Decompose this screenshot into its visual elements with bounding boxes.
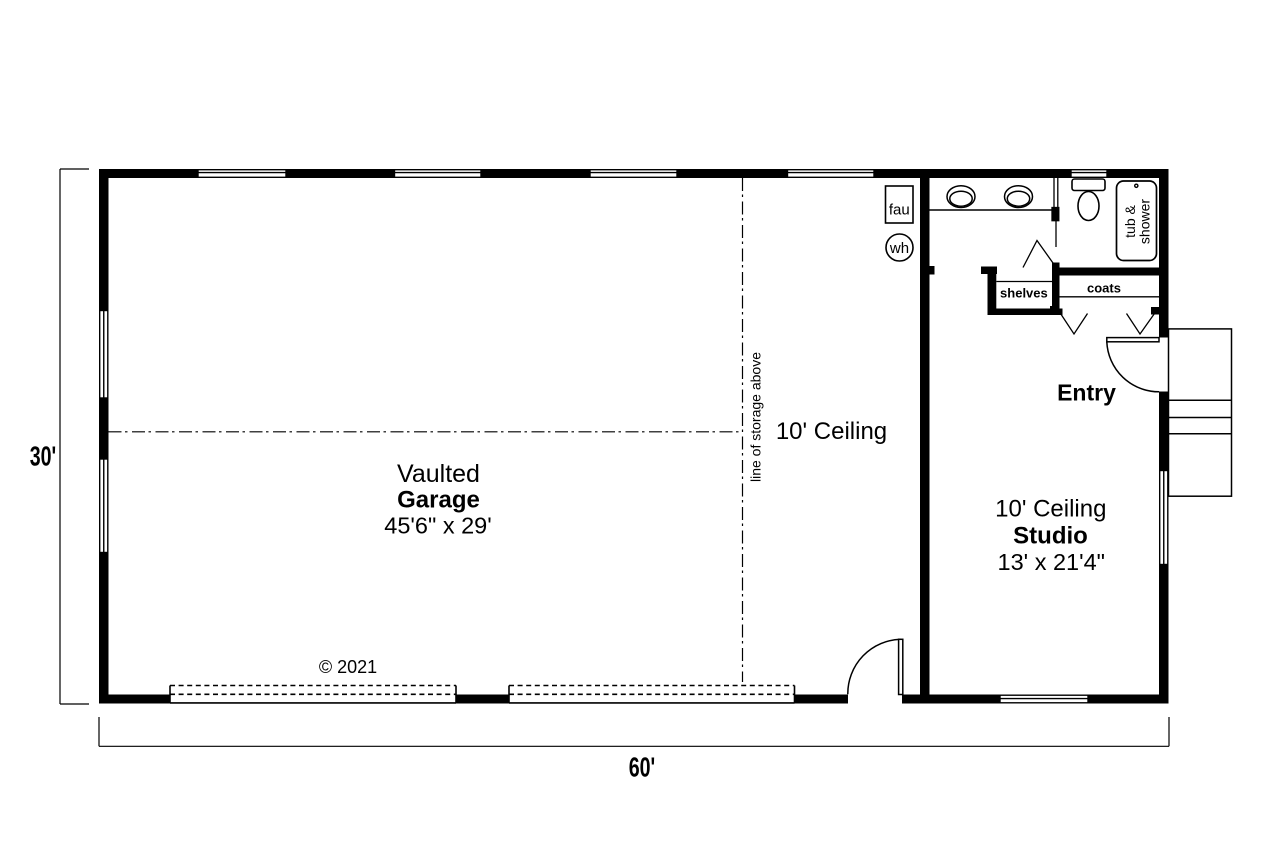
svg-text:line of storage above: line of storage above <box>748 352 764 482</box>
svg-text:fau: fau <box>889 202 910 219</box>
svg-text:10' Ceiling: 10' Ceiling <box>776 418 887 445</box>
svg-text:© 2021: © 2021 <box>319 657 377 677</box>
svg-text:Vaulted: Vaulted <box>397 460 480 488</box>
svg-text:10' Ceiling: 10' Ceiling <box>995 495 1106 522</box>
svg-text:shelves: shelves <box>1000 286 1048 301</box>
svg-text:Studio: Studio <box>1013 522 1088 549</box>
svg-text:shower: shower <box>1137 199 1153 244</box>
svg-text:coats: coats <box>1087 281 1121 296</box>
svg-text:60': 60' <box>629 752 655 783</box>
svg-text:30': 30' <box>30 441 56 472</box>
svg-text:wh: wh <box>889 240 909 257</box>
svg-text:45'6" x 29': 45'6" x 29' <box>384 513 491 539</box>
svg-text:13' x 21'4": 13' x 21'4" <box>998 549 1105 575</box>
svg-text:Garage: Garage <box>397 486 480 513</box>
svg-text:Entry: Entry <box>1057 380 1116 406</box>
